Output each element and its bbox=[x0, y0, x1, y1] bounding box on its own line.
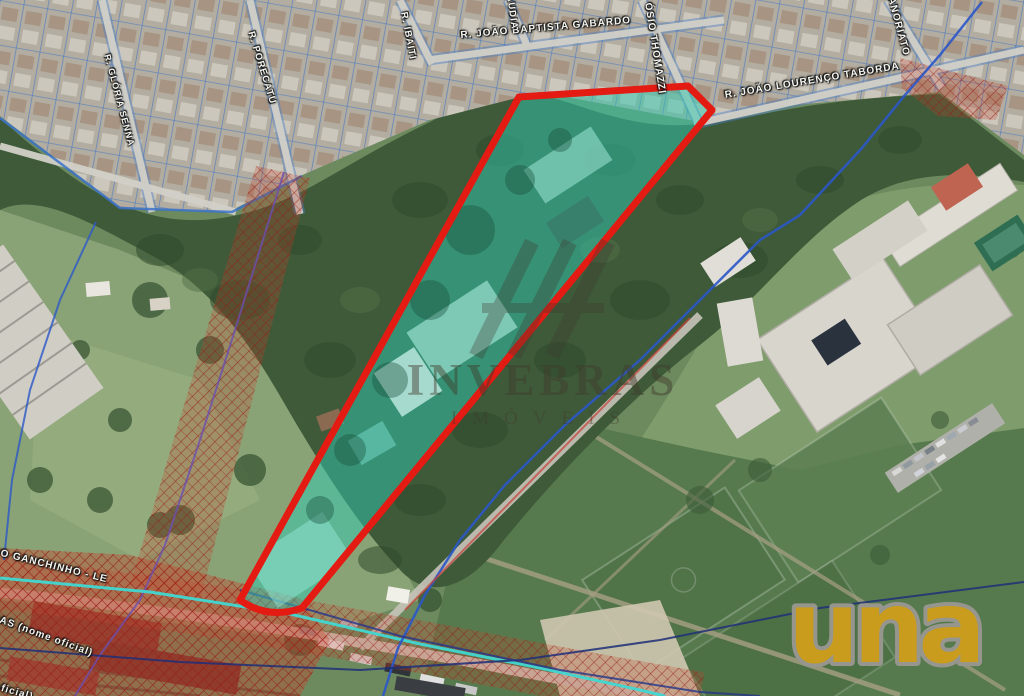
una-logo: una bbox=[782, 568, 1022, 693]
una-logo-text: una bbox=[788, 569, 980, 686]
satellite-map: R. JOÃO BAPTISTA GABARDO R. JOÃO LOURENÇ… bbox=[0, 0, 1024, 696]
